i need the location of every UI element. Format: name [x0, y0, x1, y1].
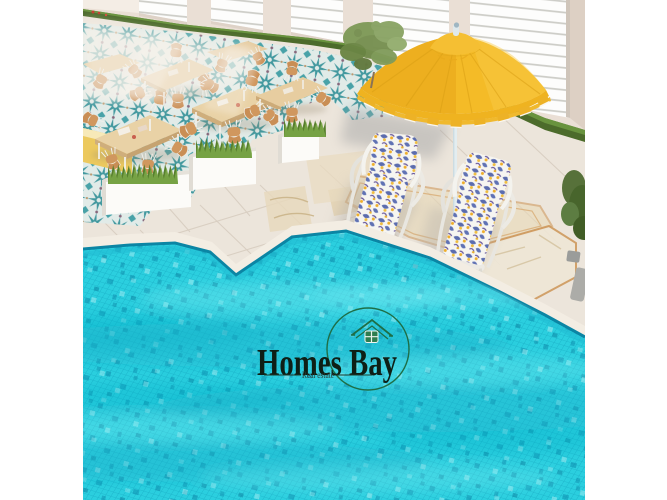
svg-text:Real estate: Real estate — [302, 370, 334, 380]
